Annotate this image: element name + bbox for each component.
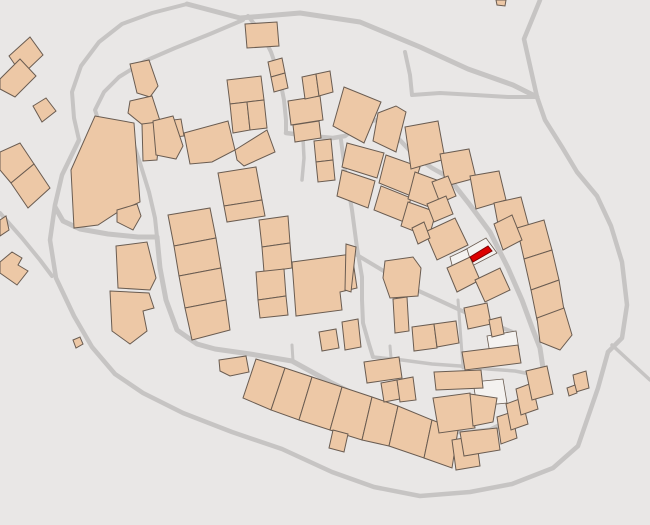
building-footprint (245, 22, 279, 48)
building-footprint (319, 329, 339, 351)
building-footprint (460, 428, 500, 456)
building-footprint (329, 430, 348, 452)
building-footprint (314, 139, 333, 162)
building-footprint (464, 303, 491, 329)
building-footprint (130, 60, 158, 97)
building-footprint (462, 345, 521, 370)
building-footprint (383, 257, 421, 298)
building-footprint (412, 324, 437, 351)
building-footprint (316, 71, 333, 96)
building-footprint (393, 297, 409, 333)
building-footprint (256, 269, 286, 300)
building-footprint (405, 121, 445, 169)
building-footprint (247, 100, 267, 130)
building-footprint (364, 357, 402, 383)
building-footprint (316, 160, 335, 182)
ne-connector-road (405, 52, 537, 97)
south-stub-1 (292, 345, 293, 361)
building-footprint (219, 356, 249, 376)
building-footprint (184, 121, 235, 164)
building-footprint (271, 73, 288, 92)
building-footprint (235, 130, 275, 166)
building-footprint (259, 216, 290, 247)
building-footprint (470, 394, 497, 426)
building-footprint (475, 268, 510, 302)
building-footprint (489, 317, 504, 337)
building-footprint (227, 76, 264, 104)
building-footprint (218, 167, 262, 206)
building-footprint (373, 106, 406, 152)
right-exit-road (612, 345, 650, 380)
building-footprint (293, 121, 321, 142)
building-footprint (288, 96, 323, 125)
building-footprint (116, 242, 156, 290)
building-footprint (0, 252, 28, 285)
building-footprint (496, 0, 506, 6)
building-footprint (434, 370, 483, 390)
south-stub-2 (390, 346, 391, 358)
building-footprint (433, 393, 475, 433)
building-footprint (110, 291, 154, 344)
building-footprint (262, 243, 292, 272)
building-footprint (567, 385, 577, 396)
map-svg[interactable] (0, 0, 650, 525)
plaza-west-stub (302, 138, 304, 180)
building-footprint (342, 319, 361, 350)
map-view[interactable] (0, 0, 650, 525)
building-footprint (434, 321, 459, 347)
building-footprint (258, 296, 288, 318)
building-footprint (73, 337, 83, 348)
building-footprint (33, 98, 56, 122)
building-footprint (397, 377, 416, 402)
